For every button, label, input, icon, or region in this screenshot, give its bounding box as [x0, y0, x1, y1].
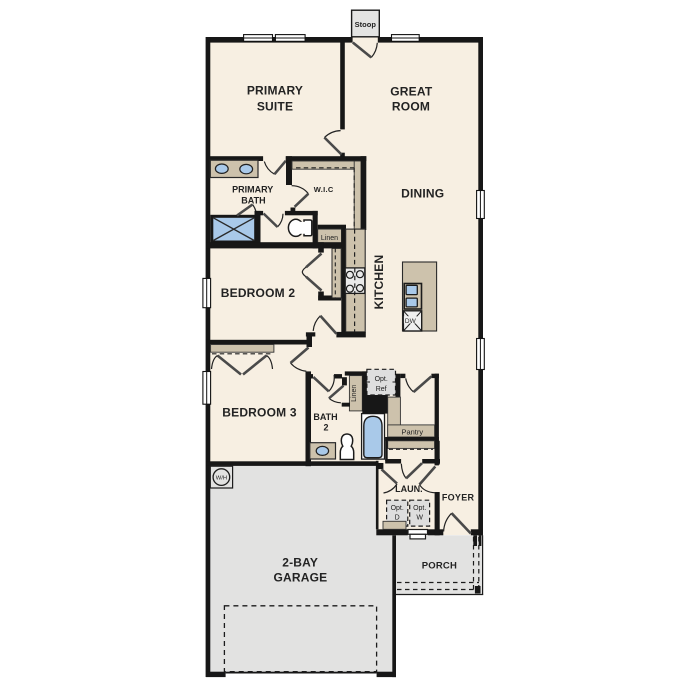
svg-text:Linen: Linen — [351, 385, 358, 402]
svg-text:FOYER: FOYER — [442, 493, 475, 503]
svg-text:SUITE: SUITE — [257, 100, 293, 114]
svg-text:PORCH: PORCH — [422, 560, 457, 571]
svg-text:DINING: DINING — [401, 187, 444, 201]
svg-text:W.I.C: W.I.C — [314, 185, 334, 194]
svg-text:BEDROOM 3: BEDROOM 3 — [222, 406, 297, 420]
svg-text:GARAGE: GARAGE — [273, 570, 327, 584]
svg-text:Opt.: Opt. — [413, 505, 426, 512]
svg-text:KITCHEN: KITCHEN — [372, 255, 386, 310]
svg-text:Stoop: Stoop — [355, 20, 377, 29]
svg-text:Linen: Linen — [321, 235, 338, 242]
svg-text:BATH: BATH — [241, 195, 265, 205]
svg-text:BEDROOM 2: BEDROOM 2 — [221, 286, 296, 300]
svg-text:2-BAY: 2-BAY — [282, 555, 318, 569]
svg-text:LAUN.: LAUN. — [395, 484, 423, 494]
svg-text:D: D — [395, 515, 400, 522]
svg-text:Opt.: Opt. — [375, 376, 388, 383]
svg-text:PRIMARY: PRIMARY — [247, 84, 303, 98]
svg-text:Pantry: Pantry — [401, 427, 423, 436]
svg-text:2: 2 — [323, 422, 328, 432]
svg-text:DW: DW — [405, 318, 417, 325]
svg-text:ROOM: ROOM — [392, 99, 430, 113]
svg-text:W/H: W/H — [216, 475, 227, 481]
svg-text:W: W — [416, 515, 423, 522]
svg-text:GREAT: GREAT — [390, 85, 433, 99]
svg-text:Ref: Ref — [376, 386, 387, 393]
svg-text:PRIMARY: PRIMARY — [232, 185, 273, 195]
svg-text:BATH: BATH — [313, 412, 337, 422]
svg-text:Opt.: Opt. — [391, 505, 404, 512]
